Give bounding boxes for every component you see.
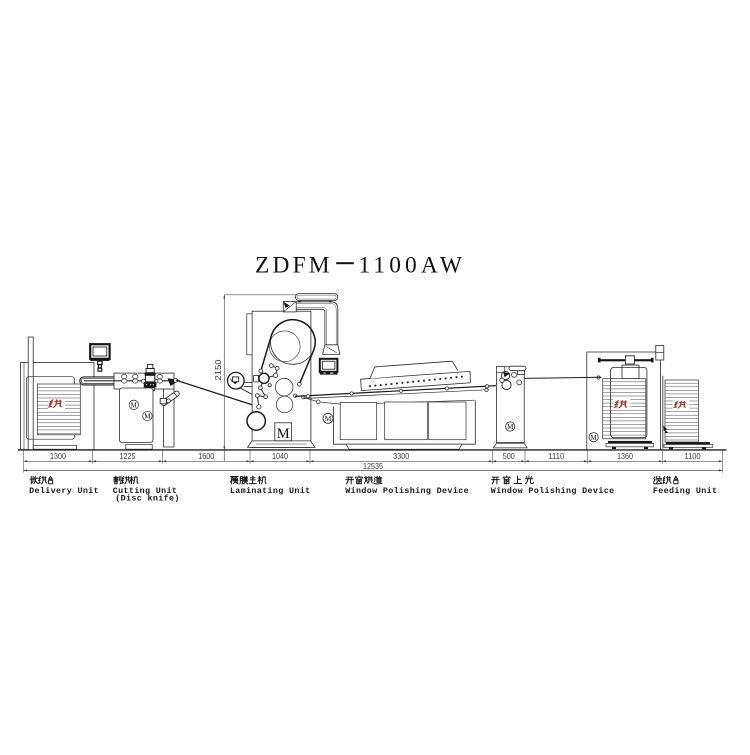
svg-text:1600: 1600 — [198, 451, 214, 461]
svg-text:M: M — [507, 423, 514, 431]
svg-text:M: M — [277, 426, 290, 442]
svg-text:M: M — [131, 401, 138, 409]
svg-text:Laminating Unit: Laminating Unit — [230, 486, 311, 496]
svg-text:12535: 12535 — [363, 461, 383, 471]
svg-text:1040: 1040 — [272, 451, 288, 461]
svg-text:M: M — [144, 413, 151, 421]
svg-text:Feeding Unit: Feeding Unit — [653, 486, 718, 496]
svg-text:1360: 1360 — [617, 451, 633, 461]
svg-text:Window Polishing Device: Window Polishing Device — [491, 486, 615, 496]
svg-text:1110: 1110 — [548, 451, 564, 461]
svg-text:(Disc knife): (Disc knife) — [115, 494, 180, 504]
svg-text:1100AW: 1100AW — [359, 253, 467, 279]
svg-text:M: M — [590, 434, 597, 442]
svg-text:M: M — [325, 414, 332, 423]
svg-text:ZDFM: ZDFM — [255, 253, 333, 279]
svg-text:500: 500 — [503, 451, 515, 461]
svg-text:Window Polishing Device: Window Polishing Device — [345, 486, 469, 496]
svg-text:1225: 1225 — [120, 451, 136, 461]
svg-text:2150: 2150 — [213, 359, 223, 380]
svg-text:1300: 1300 — [50, 451, 66, 461]
svg-text:3300: 3300 — [393, 451, 409, 461]
svg-text:1100: 1100 — [685, 451, 701, 461]
svg-text:Delivery Unit: Delivery Unit — [29, 486, 99, 496]
